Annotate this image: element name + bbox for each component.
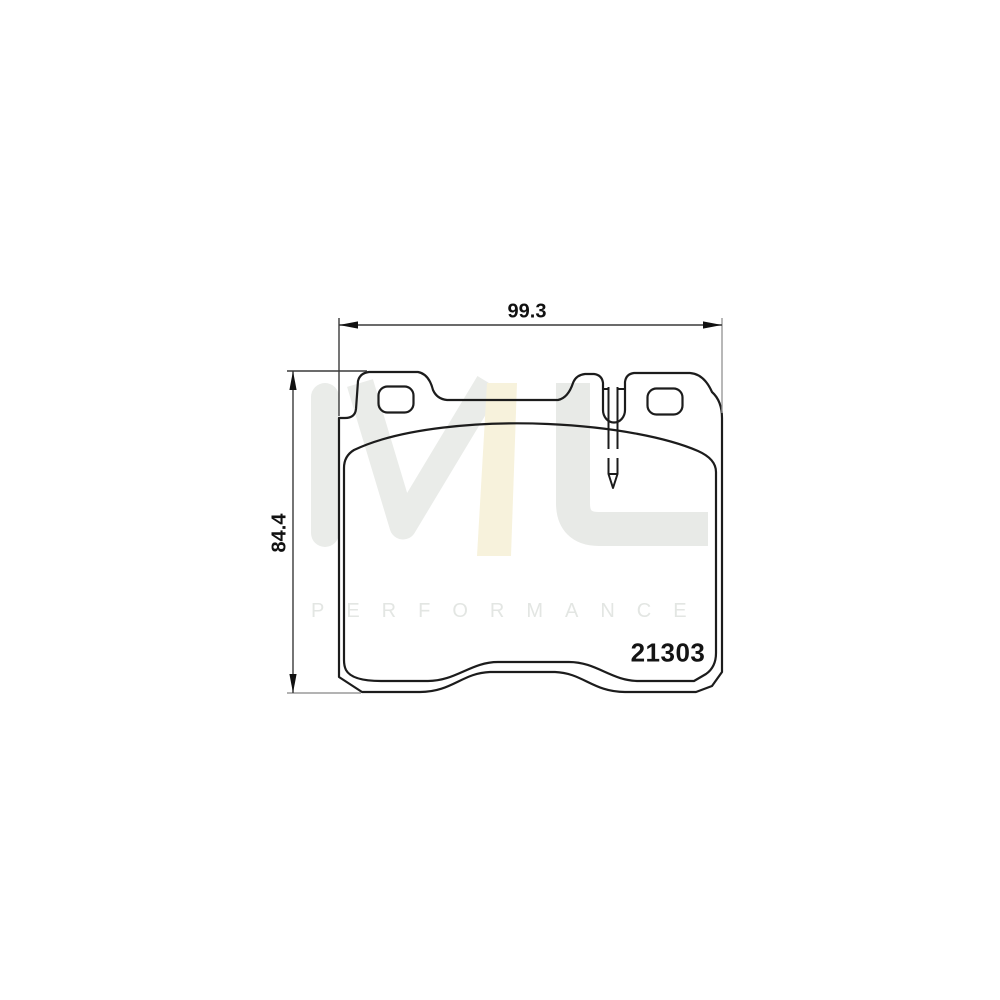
arrowhead-top xyxy=(289,371,296,390)
part-number: 21303 xyxy=(631,638,706,669)
wear-indicator-pin xyxy=(603,387,625,488)
width-dimension-label: 99.3 xyxy=(508,301,547,324)
arrowhead-left xyxy=(339,321,358,328)
width-dimension xyxy=(339,318,722,416)
height-dimension-label: 84.4 xyxy=(269,514,292,553)
brake-pad-drawing xyxy=(0,0,1000,1000)
arrowhead-bottom xyxy=(289,674,296,693)
height-dimension xyxy=(287,371,367,693)
lug-hole-left xyxy=(379,387,414,413)
technical-drawing: PERFORMANCE xyxy=(0,0,1000,1000)
lug-hole-right xyxy=(648,389,683,415)
arrowhead-right xyxy=(703,321,722,328)
